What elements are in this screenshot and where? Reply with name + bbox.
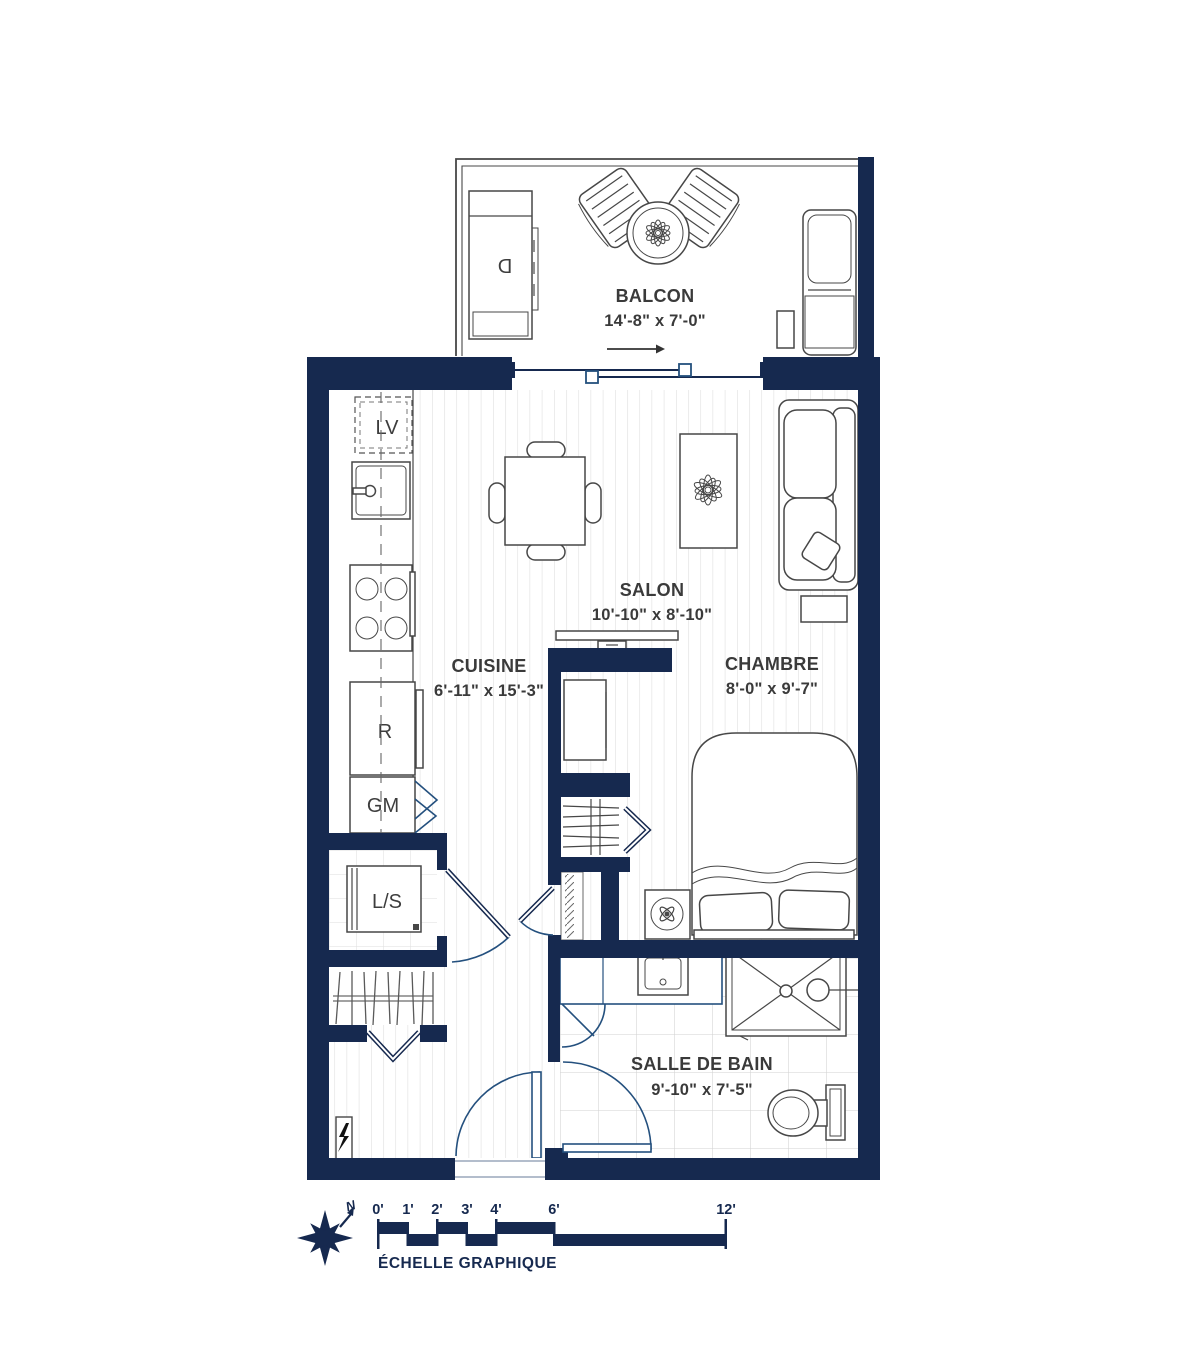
lounge-chair [803,210,856,355]
shower-head [807,979,829,1001]
balcony-side-table [777,311,794,348]
slider-handle [586,371,598,383]
balcony: D [456,157,874,359]
left-wall [307,357,329,1180]
north-label: N [344,1197,358,1214]
tick-5: 6' [548,1202,560,1218]
dishwasher-label: LV [376,417,400,439]
balcony-name: BALCON [616,286,695,306]
tick-6: 12' [716,1202,736,1218]
bedroom-dims: 8'-0" x 9'-7" [726,680,818,698]
bbq-grill: D [469,191,538,339]
washer-dryer-label: L/S [372,891,402,913]
bathroom-dims: 9'-10" x 7'-5" [651,1081,753,1099]
stove [350,565,415,651]
balcony-dims: 14'-8" x 7'-0" [604,312,706,330]
refrigerator: R [350,682,423,775]
tick-4: 4' [490,1202,502,1218]
shower-drain [780,985,792,997]
tick-2: 2' [431,1202,443,1218]
sofa-side-table [801,596,847,622]
sliding-patio-door [509,345,766,384]
balcony-right-wall [858,157,874,359]
floor-plan-page: D [0,0,1200,1350]
tv-wall [548,648,672,672]
console-with-plant [680,434,737,548]
pillow [778,890,849,930]
headboard [694,930,854,939]
salon-dims: 10'-10" x 8'-10" [592,606,712,624]
tick-1: 1' [402,1202,414,1218]
laundry-closet: L/S [347,866,421,932]
tick-3: 3' [461,1202,473,1218]
balcony-table-set [573,166,744,264]
pillow [699,892,773,934]
bed [692,733,857,939]
sofa [779,400,858,590]
kitchen-dims: 6'-11" x 15'-3" [434,682,544,700]
pantry-label: GM [367,795,399,817]
bathroom-top-wall [548,940,880,958]
salon-name: SALON [620,580,685,600]
bbq-label: D [498,256,512,278]
mechanical-shaft [561,872,583,940]
scale-bar: 0' 1' 2' 3' 4' 6' 12' ÉCHELLE GRAPHIQUE [372,1202,736,1272]
bottom-wall-right [545,1158,880,1180]
bathroom-left-wall [548,958,560,1062]
dresser [564,680,606,760]
right-wall [858,357,880,1180]
slider-handle [679,364,691,376]
compass-rose: N [297,1197,358,1266]
slide-direction-arrow [607,345,665,354]
dishwasher: LV [355,397,412,453]
tick-0: 0' [372,1202,384,1218]
toilet [768,1085,845,1140]
electrical-panel [336,1117,352,1159]
kitchen-name: CUISINE [451,656,526,676]
top-wall-left [307,357,512,390]
nightstand-fan [645,890,690,939]
shower [726,946,858,1040]
bedroom-name: CHAMBRE [725,654,819,674]
scale-title: ÉCHELLE GRAPHIQUE [378,1255,557,1272]
bottom-wall-left [307,1158,455,1180]
dining-table-set [489,442,601,560]
floor-plan-svg: D [0,0,1200,1350]
refrigerator-label: R [378,721,392,743]
bathroom-name: SALLE DE BAIN [631,1054,773,1074]
balcony-round-table [627,202,689,264]
